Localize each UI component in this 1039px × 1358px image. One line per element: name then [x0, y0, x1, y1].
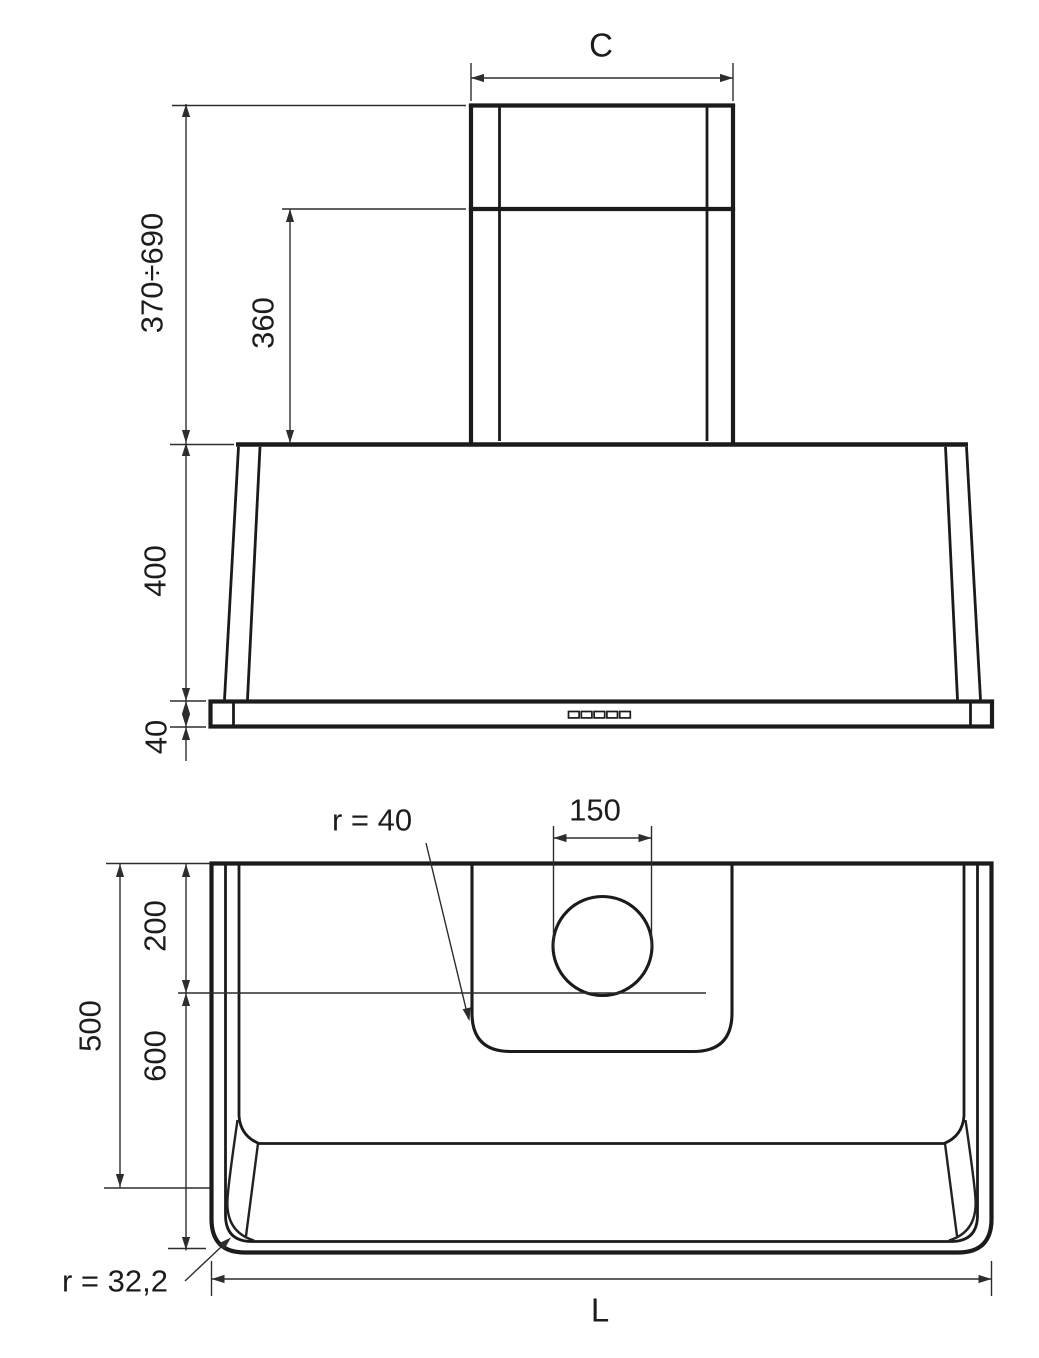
- dim-label-recess-radius: r = 40: [332, 803, 412, 838]
- dim-label-base-frame-height: 40: [139, 720, 174, 754]
- control-button: [569, 712, 580, 718]
- front-view-dimensions: C 370÷690 400 40 360: [135, 27, 734, 762]
- front-edge-bevel-right-inner: [945, 1144, 957, 1237]
- dim-label-total-depth: 500: [73, 1000, 108, 1052]
- hood-dimension-drawing: C 370÷690 400 40 360: [0, 0, 1039, 1358]
- dim-label-chimney-height-range: 370÷690: [135, 213, 170, 333]
- control-button: [620, 712, 631, 718]
- plan-view-dimensions: 500 200 600 150 r = 40 r = 32,2 L: [62, 793, 992, 1329]
- duct-recess-cutout: [472, 864, 732, 1052]
- front-view: [211, 104, 993, 727]
- dim-label-canopy-height: 400: [138, 545, 173, 597]
- chimney-outline: [469, 104, 735, 443]
- dim-label-width: L: [591, 1292, 609, 1329]
- plan-view: [212, 864, 992, 1253]
- plan-inner-outline: [226, 865, 978, 1242]
- canopy-outline: [225, 445, 981, 700]
- dim-label-back-depth: 200: [138, 900, 173, 952]
- dim-label-duct-diameter: 150: [569, 793, 621, 828]
- control-button: [594, 712, 605, 718]
- plan-outer-outline: [212, 864, 992, 1253]
- control-buttons: [569, 712, 631, 718]
- front-edge-bevel-left-inner: [246, 1144, 258, 1237]
- control-button: [581, 712, 592, 718]
- duct-hole: [553, 897, 652, 996]
- dim-label-chimney-width: C: [589, 27, 613, 64]
- dim-label-front-depth: 600: [138, 1030, 173, 1082]
- plan-bottom-panel: [239, 865, 964, 1144]
- drawing-page: C 370÷690 400 40 360: [0, 0, 1039, 1358]
- dim-label-inner-chimney-height: 360: [246, 297, 281, 349]
- control-button: [607, 712, 618, 718]
- dim-label-corner-radius: r = 32,2: [62, 1264, 168, 1299]
- base-frame: [211, 702, 993, 727]
